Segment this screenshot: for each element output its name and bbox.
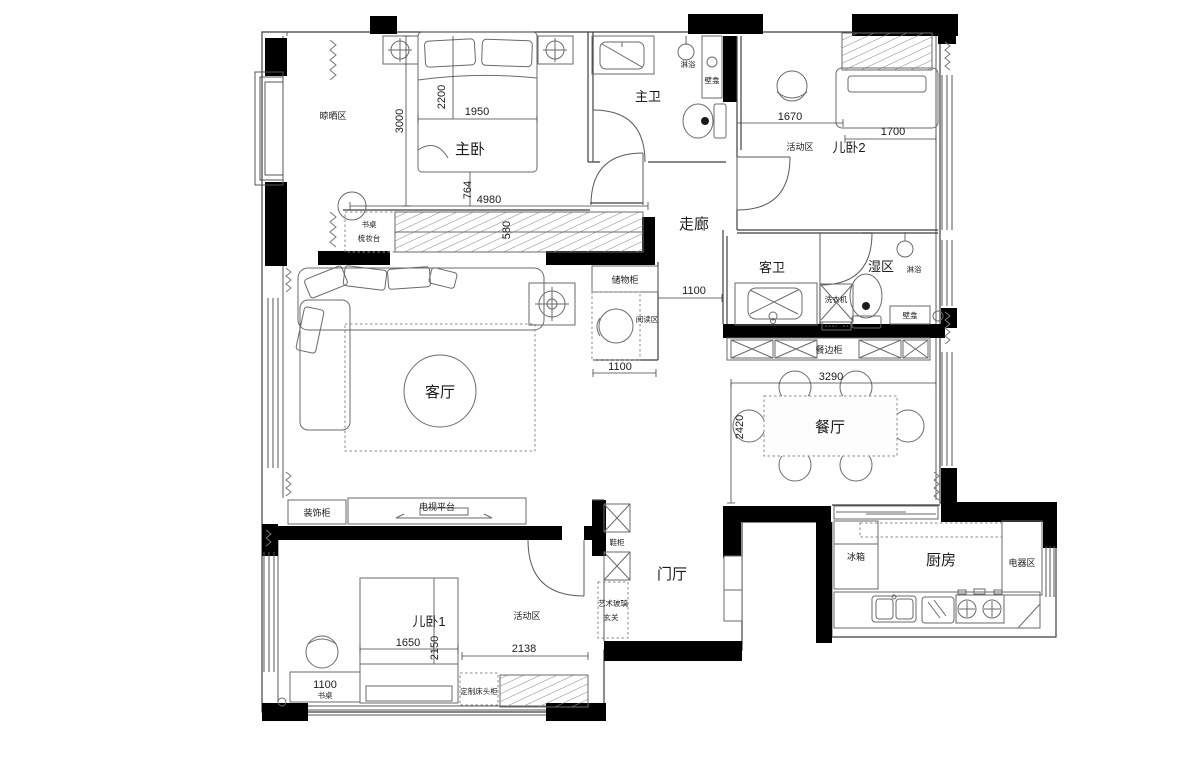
nightstand-right: [538, 36, 573, 64]
master-bath-door: [593, 110, 645, 162]
label-appliance: 电器区: [1008, 557, 1035, 568]
dim-1650: 1650: [396, 637, 420, 649]
label-activity1: 活动区: [513, 610, 540, 621]
dim-2138: 2138: [512, 643, 536, 655]
wet-toilet: [850, 274, 882, 328]
stove: [956, 589, 1004, 623]
upper-cabinet: [860, 523, 1002, 537]
outer-walls: [262, 32, 1056, 712]
label-reading: 阅读区: [636, 314, 659, 324]
dim-2150: 2150: [429, 636, 441, 660]
master-bedroom-furniture: [338, 32, 643, 252]
dim-2420: 2420: [734, 415, 746, 439]
master-wardrobe: [395, 212, 643, 252]
kitchen-window: [1046, 546, 1054, 597]
nightstand-left: [383, 36, 418, 64]
dim-1700: 1700: [881, 126, 905, 138]
dim-764: 764: [462, 181, 474, 199]
kid1-wardrobe: [500, 675, 588, 707]
dim-3290: 3290: [819, 371, 843, 383]
label-kitchen: 厨房: [926, 552, 956, 569]
dim-1100-corridor: 1100: [682, 285, 706, 297]
living-room-furniture: [296, 265, 575, 451]
label-master-bedroom: 主卧: [455, 141, 485, 158]
master-bath-vanity: [592, 36, 654, 74]
washing-machine-box: [820, 284, 853, 330]
label-corridor: 走廊: [679, 216, 709, 233]
dimension-lines: [350, 36, 936, 660]
label-entry: 玄关: [604, 612, 619, 622]
label-kid1: 儿卧1: [412, 614, 445, 629]
label-tv-platform: 电视平台: [419, 501, 455, 512]
kid1-door: [528, 540, 584, 596]
dim-4980: 4980: [477, 194, 501, 206]
label-shower-master: 淋浴: [681, 59, 696, 69]
wetzone-window: [942, 240, 952, 306]
dim-1670: 1670: [778, 111, 802, 123]
guest-bath-fixtures: [735, 283, 817, 325]
kid2-bed: [836, 68, 938, 128]
sofa: [296, 265, 544, 430]
label-custom-bedside: 定制床头柜: [460, 686, 498, 696]
label-wet-zone: 湿区: [868, 259, 894, 274]
sink: [872, 595, 916, 622]
kid2-wardrobe: [842, 33, 932, 70]
reading-chair: [597, 309, 633, 343]
label-activity2: 活动区: [786, 141, 813, 152]
floor-plan-drawing: 晾晒区 主卧 主卫 淋浴 壁龛 儿卧2 活动区 走廊 书桌 梳妆台 储物柜 阅读…: [0, 0, 1200, 777]
art-glass-panel: [598, 582, 628, 638]
label-desk-vanity-1: 书桌: [362, 219, 377, 229]
label-guest-bath: 客卫: [759, 260, 785, 275]
windows: [255, 40, 1054, 715]
dim-1100-reading: 1100: [608, 361, 632, 373]
label-fridge: 冰箱: [847, 551, 865, 562]
label-sideboard: 餐边柜: [815, 344, 842, 355]
label-niche-wet: 壁龛: [903, 310, 918, 320]
kitchen-sliding-door: [834, 506, 938, 519]
dim-1950: 1950: [465, 106, 489, 118]
wet-zone-fixtures: [820, 232, 943, 330]
master-toilet: [683, 104, 726, 138]
label-washer: 洗衣机: [825, 294, 848, 304]
kid2-chair: [777, 71, 807, 101]
label-niche-master: 壁龛: [705, 75, 720, 85]
kid2-window: [942, 75, 952, 230]
entry-door: [724, 556, 742, 621]
guest-bath-door: [820, 233, 872, 285]
dim-580: 580: [501, 221, 513, 239]
dim-3000: 3000: [394, 109, 406, 133]
label-shoe-cabinet: 鞋柜: [610, 537, 625, 547]
label-desk-kid1: 书桌: [318, 690, 333, 700]
cutting-board: [922, 597, 954, 623]
label-deco-cabinet: 装饰柜: [303, 507, 330, 518]
master-bath-fixtures: [592, 36, 726, 138]
label-kid2: 儿卧2: [832, 140, 865, 155]
living-window: [268, 298, 278, 468]
dim-1100-desk: 1100: [313, 679, 337, 691]
ceiling-light-icon: [529, 283, 575, 325]
label-foyer: 门厅: [657, 566, 687, 583]
label-shower-wet: 淋浴: [907, 264, 922, 274]
bay-window: [255, 72, 283, 185]
label-drying-area: 晾晒区: [319, 110, 346, 121]
floor-plan-page: 晾晒区 主卧 主卫 淋浴 壁龛 儿卧2 活动区 走廊 书桌 梳妆台 储物柜 阅读…: [0, 0, 1200, 777]
master-shower: [678, 36, 694, 60]
kid2-door: [737, 157, 790, 210]
label-dining: 餐厅: [815, 419, 845, 436]
label-storage-cabinet: 储物柜: [611, 274, 638, 285]
label-art-glass: 艺术玻璃: [598, 598, 628, 608]
wet-shower: [897, 232, 913, 257]
master-niche: [702, 36, 722, 98]
label-master-bath: 主卫: [635, 89, 661, 104]
labels: 晾晒区 主卧 主卫 淋浴 壁龛 儿卧2 活动区 走廊 书桌 梳妆台 储物柜 阅读…: [303, 59, 1035, 700]
label-desk-vanity-2: 梳妆台: [358, 233, 381, 243]
dining-window: [942, 352, 952, 466]
label-living: 客厅: [425, 384, 455, 401]
kitchen-fixtures: [834, 521, 1042, 628]
kid1-window: [264, 552, 274, 672]
dim-2200: 2200: [436, 85, 448, 109]
master-bedroom-door: [591, 153, 643, 205]
